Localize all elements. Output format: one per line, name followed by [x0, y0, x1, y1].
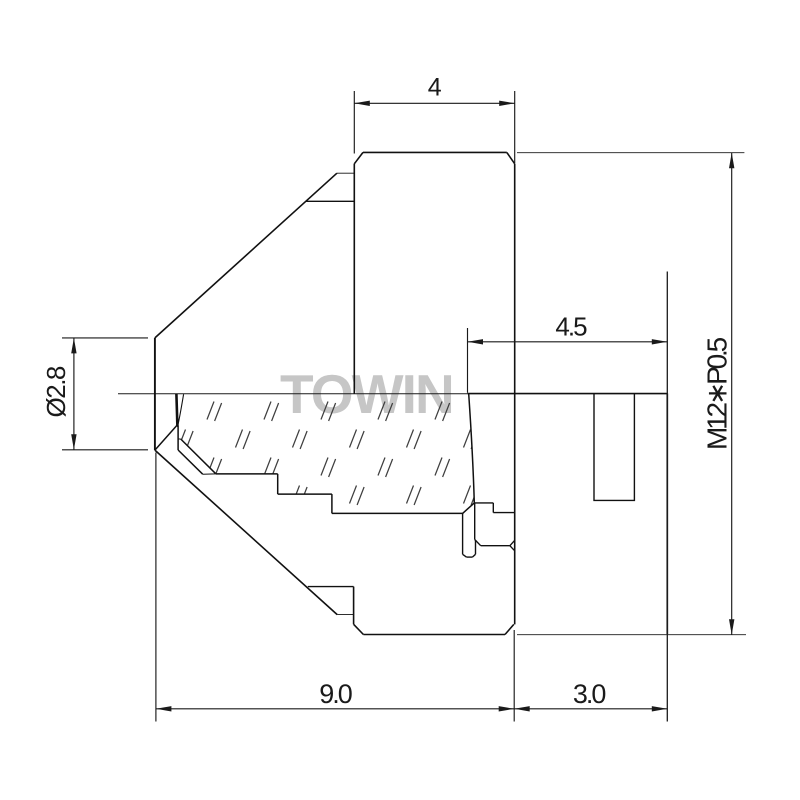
svg-text:M12∗P0.5: M12∗P0.5: [702, 337, 733, 450]
svg-text:4: 4: [428, 73, 442, 101]
svg-text:4.5: 4.5: [555, 312, 587, 342]
svg-text:9.0: 9.0: [319, 679, 352, 709]
svg-text:Ø2.8: Ø2.8: [41, 366, 71, 417]
svg-text:3.0: 3.0: [573, 679, 606, 709]
